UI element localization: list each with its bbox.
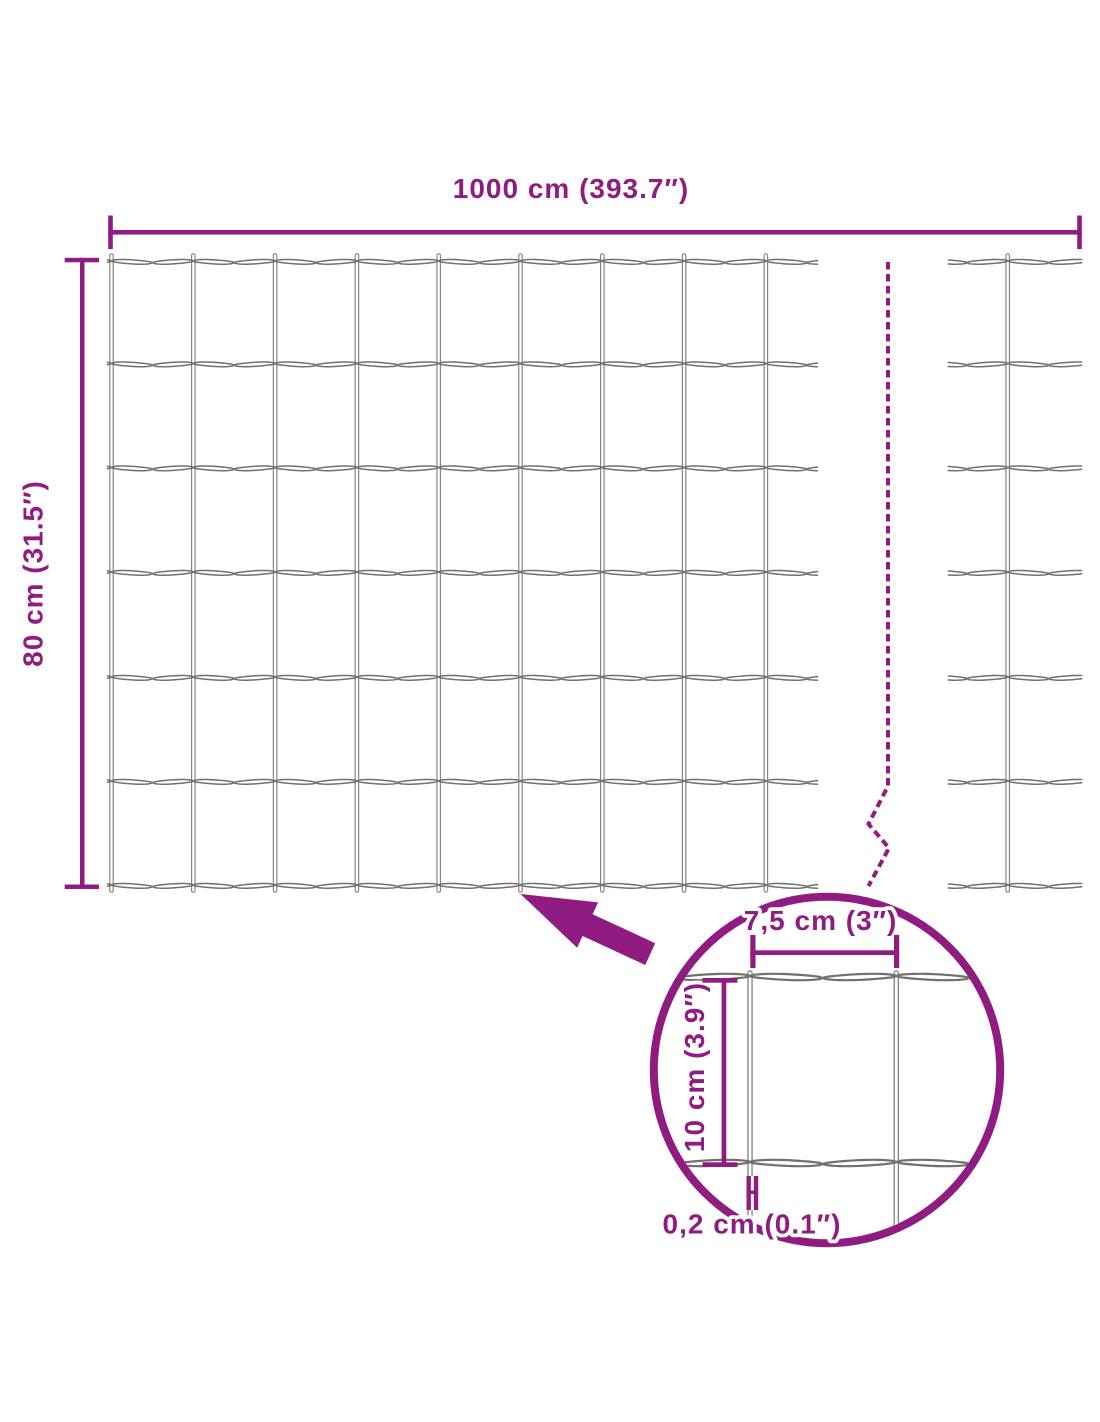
svg-text:0,2 cm (0.1″): 0,2 cm (0.1″): [663, 1209, 842, 1240]
svg-text:10 cm (3.9″): 10 cm (3.9″): [679, 982, 710, 1152]
svg-text:80 cm (31.5″): 80 cm (31.5″): [18, 480, 49, 667]
svg-text:1000 cm (393.7″): 1000 cm (393.7″): [453, 173, 689, 204]
svg-text:7,5 cm (3″): 7,5 cm (3″): [744, 905, 898, 936]
